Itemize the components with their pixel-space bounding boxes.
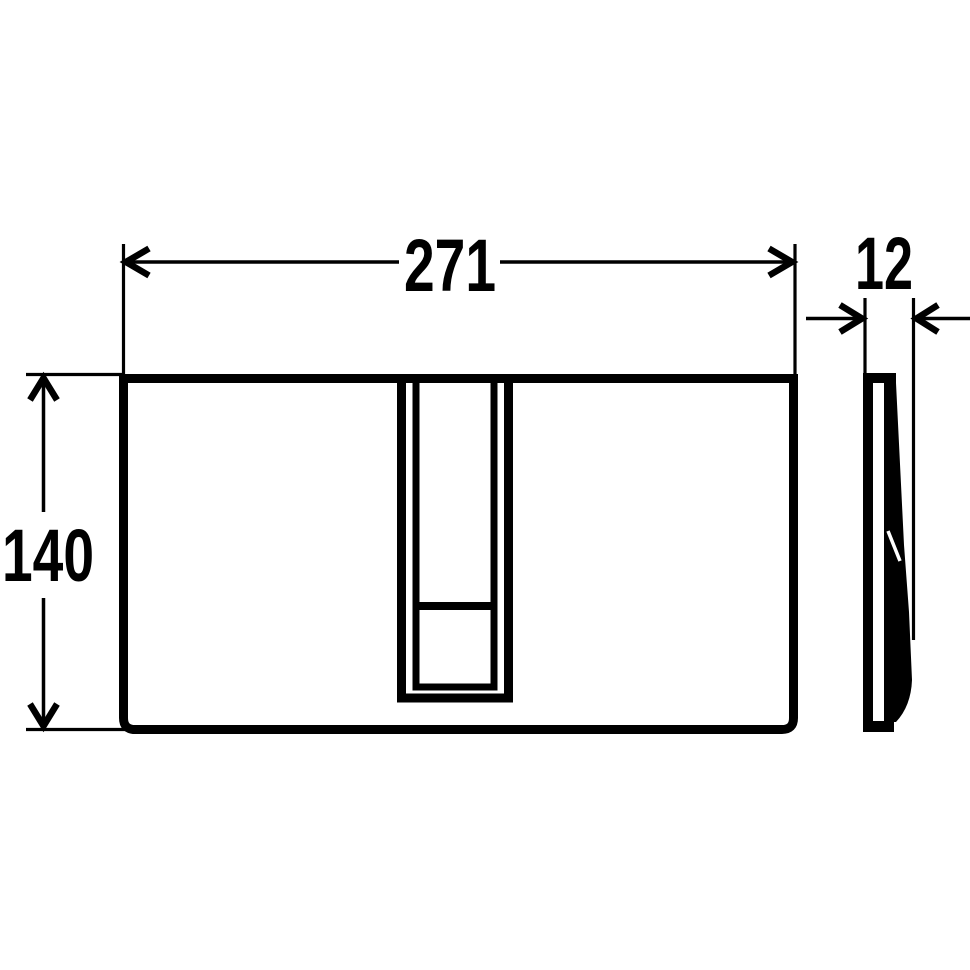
flush-plate-dimension-drawing: 271 140 12 bbox=[0, 0, 970, 970]
plate-outline bbox=[124, 379, 794, 730]
side-view bbox=[863, 373, 912, 732]
side-bottom-cap bbox=[863, 721, 894, 732]
button-slot-inner bbox=[416, 377, 494, 687]
side-front-face-line bbox=[863, 373, 873, 732]
front-view bbox=[124, 377, 794, 730]
width-dim-label: 271 bbox=[404, 224, 496, 307]
side-top-cap bbox=[863, 373, 896, 383]
technical-drawing-canvas: 271 140 12 bbox=[0, 0, 970, 970]
height-dim-label: 140 bbox=[2, 514, 94, 597]
depth-dim-label: 12 bbox=[855, 222, 913, 305]
dimension-width: 271 bbox=[124, 224, 796, 415]
